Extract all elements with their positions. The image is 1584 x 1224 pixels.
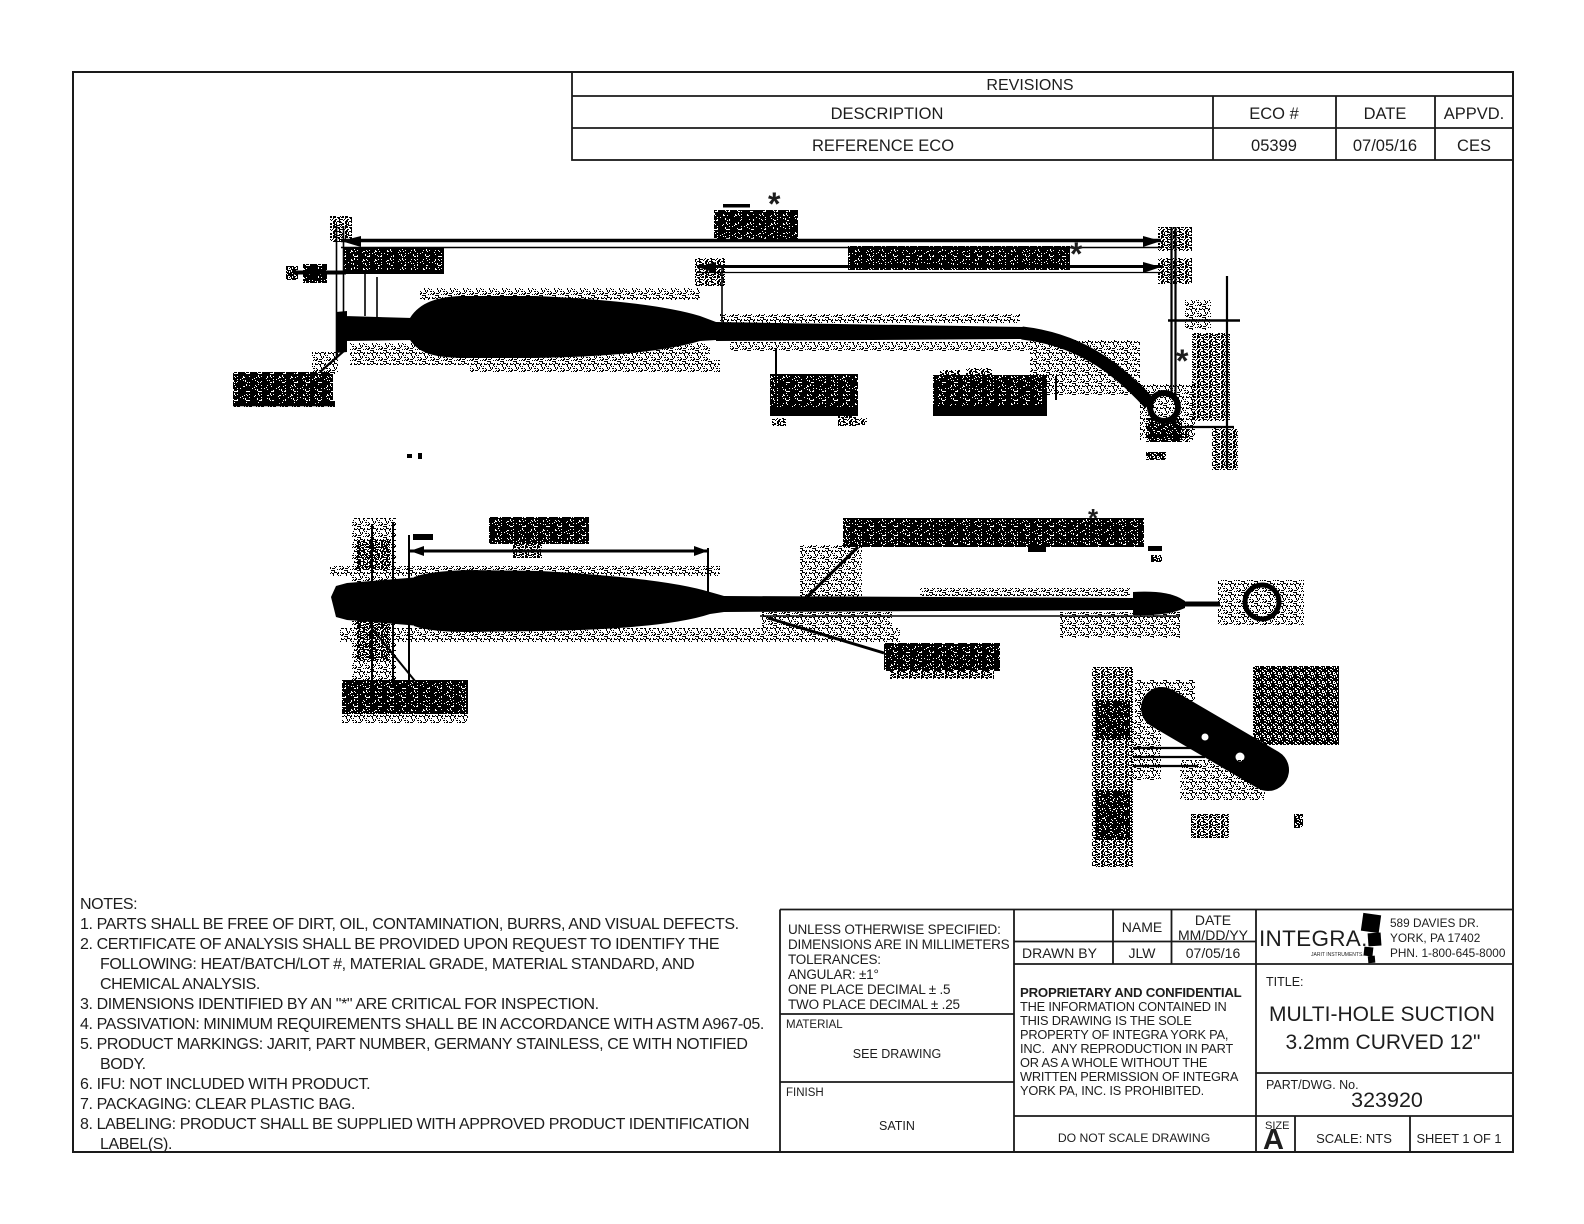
svg-text:THIS DRAWING IS THE SOLE: THIS DRAWING IS THE SOLE — [1020, 1013, 1192, 1028]
svg-text:UNLESS OTHERWISE SPECIFIED:: UNLESS OTHERWISE SPECIFIED: — [788, 922, 1001, 937]
svg-text:PROPRIETARY AND CONFIDENTIAL: PROPRIETARY AND CONFIDENTIAL — [1020, 985, 1242, 1000]
svg-text:DRAWN BY: DRAWN BY — [1022, 945, 1098, 961]
svg-text:*: * — [768, 186, 781, 222]
svg-text:05399: 05399 — [1251, 137, 1297, 155]
svg-text:INC. ANY REPRODUCTION IN PART: INC. ANY REPRODUCTION IN PART — [1020, 1041, 1233, 1056]
svg-text:CES: CES — [1457, 137, 1491, 155]
svg-text:YORK, PA 17402: YORK, PA 17402 — [1390, 931, 1480, 945]
svg-text:YORK PA, INC. IS PROHIBITED.: YORK PA, INC. IS PROHIBITED. — [1020, 1083, 1204, 1098]
svg-text:REFERENCE ECO: REFERENCE ECO — [812, 137, 954, 155]
svg-text:JARIT INSTRUMENTS.: JARIT INSTRUMENTS. — [1311, 952, 1364, 958]
svg-text:MULTI-HOLE SUCTION: MULTI-HOLE SUCTION — [1269, 1003, 1495, 1026]
svg-text:1. PARTS SHALL BE FREE OF DIRT: 1. PARTS SHALL BE FREE OF DIRT, OIL, CON… — [80, 916, 739, 933]
svg-text:SEE DRAWING: SEE DRAWING — [853, 1047, 941, 1061]
svg-text:TWO PLACE DECIMAL ± .25: TWO PLACE DECIMAL ± .25 — [788, 997, 960, 1012]
svg-text:3.2mm CURVED 12": 3.2mm CURVED 12" — [1286, 1031, 1481, 1054]
svg-text:*: * — [1176, 343, 1189, 379]
svg-text:OR AS A WHOLE WITHOUT THE: OR AS A WHOLE WITHOUT THE — [1020, 1055, 1207, 1070]
svg-text:3. DIMENSIONS IDENTIFIED BY AN: 3. DIMENSIONS IDENTIFIED BY AN "*" ARE C… — [80, 996, 599, 1013]
svg-text:6. IFU: NOT INCLUDED WITH PROD: 6. IFU: NOT INCLUDED WITH PRODUCT. — [80, 1076, 370, 1093]
svg-text:DESCRIPTION: DESCRIPTION — [831, 105, 944, 123]
svg-text:DIMENSIONS ARE IN MILLIMETERS: DIMENSIONS ARE IN MILLIMETERS — [788, 937, 1010, 952]
svg-text:APPVD.: APPVD. — [1444, 105, 1505, 123]
svg-text:PART/DWG. No.: PART/DWG. No. — [1266, 1078, 1359, 1092]
svg-text:5. PRODUCT MARKINGS: JARIT, PA: 5. PRODUCT MARKINGS: JARIT, PART NUMBER,… — [80, 1036, 747, 1053]
svg-text:ANGULAR: ±1°: ANGULAR: ±1° — [788, 967, 879, 982]
svg-text:ONE PLACE DECIMAL ± .5: ONE PLACE DECIMAL ± .5 — [788, 982, 950, 997]
svg-text:TITLE:: TITLE: — [1266, 975, 1304, 989]
svg-text:8. LABELING: PRODUCT SHALL BE: 8. LABELING: PRODUCT SHALL BE SUPPLIED W… — [80, 1116, 749, 1133]
svg-text:A: A — [1263, 1124, 1284, 1156]
svg-text:PHN. 1-800-645-8000: PHN. 1-800-645-8000 — [1390, 946, 1506, 960]
svg-text:ECO #: ECO # — [1249, 105, 1299, 123]
svg-text:TOLERANCES:: TOLERANCES: — [788, 952, 881, 967]
svg-text:2. CERTIFICATE OF ANALYSIS SHA: 2. CERTIFICATE OF ANALYSIS SHALL BE PROV… — [80, 936, 719, 953]
svg-text:CHEMICAL ANALYSIS.: CHEMICAL ANALYSIS. — [100, 976, 260, 993]
svg-text:589 DAVIES DR.: 589 DAVIES DR. — [1390, 916, 1479, 930]
svg-text:07/05/16: 07/05/16 — [1353, 137, 1417, 155]
svg-text:7. PACKAGING: CLEAR PLASTIC BA: 7. PACKAGING: CLEAR PLASTIC BAG. — [80, 1096, 355, 1113]
svg-text:JLW: JLW — [1129, 945, 1157, 961]
svg-text:LABEL(S).: LABEL(S). — [100, 1136, 172, 1153]
svg-text:INTEGRA.: INTEGRA. — [1259, 926, 1368, 951]
svg-text:PROPERTY OF INTEGRA YORK PA,: PROPERTY OF INTEGRA YORK PA, — [1020, 1027, 1228, 1042]
svg-text:MATERIAL: MATERIAL — [786, 1019, 843, 1031]
svg-text:NAME: NAME — [1122, 919, 1162, 935]
svg-text:SHEET 1 OF 1: SHEET 1 OF 1 — [1416, 1131, 1501, 1146]
svg-text:323920: 323920 — [1351, 1088, 1423, 1112]
svg-text:4. PASSIVATION: MINIMUM REQUIR: 4. PASSIVATION: MINIMUM REQUIREMENTS SHA… — [80, 1016, 764, 1033]
svg-text:DATE: DATE — [1364, 105, 1407, 123]
svg-text:NOTES:: NOTES: — [80, 896, 137, 913]
svg-text:MM/DD/YY: MM/DD/YY — [1178, 927, 1249, 943]
svg-text:WRITTEN PERMISSION OF INTEGRA: WRITTEN PERMISSION OF INTEGRA — [1020, 1069, 1239, 1084]
svg-text:DO NOT SCALE DRAWING: DO NOT SCALE DRAWING — [1058, 1131, 1210, 1145]
svg-text:FOLLOWING: HEAT/BATCH/LOT #, M: FOLLOWING: HEAT/BATCH/LOT #, MATERIAL GR… — [100, 956, 694, 973]
svg-text:BODY.: BODY. — [100, 1056, 146, 1073]
svg-text:THE INFORMATION CONTAINED IN: THE INFORMATION CONTAINED IN — [1020, 999, 1227, 1014]
svg-text:*: * — [1088, 503, 1099, 533]
svg-text:REVISIONS: REVISIONS — [986, 77, 1073, 94]
svg-text:07/05/16: 07/05/16 — [1186, 945, 1241, 961]
svg-text:FINISH: FINISH — [786, 1087, 824, 1099]
svg-text:SCALE: NTS: SCALE: NTS — [1316, 1131, 1392, 1146]
svg-text:DATE: DATE — [1195, 912, 1231, 928]
svg-text:*: * — [1070, 236, 1083, 272]
svg-text:SATIN: SATIN — [879, 1119, 915, 1133]
